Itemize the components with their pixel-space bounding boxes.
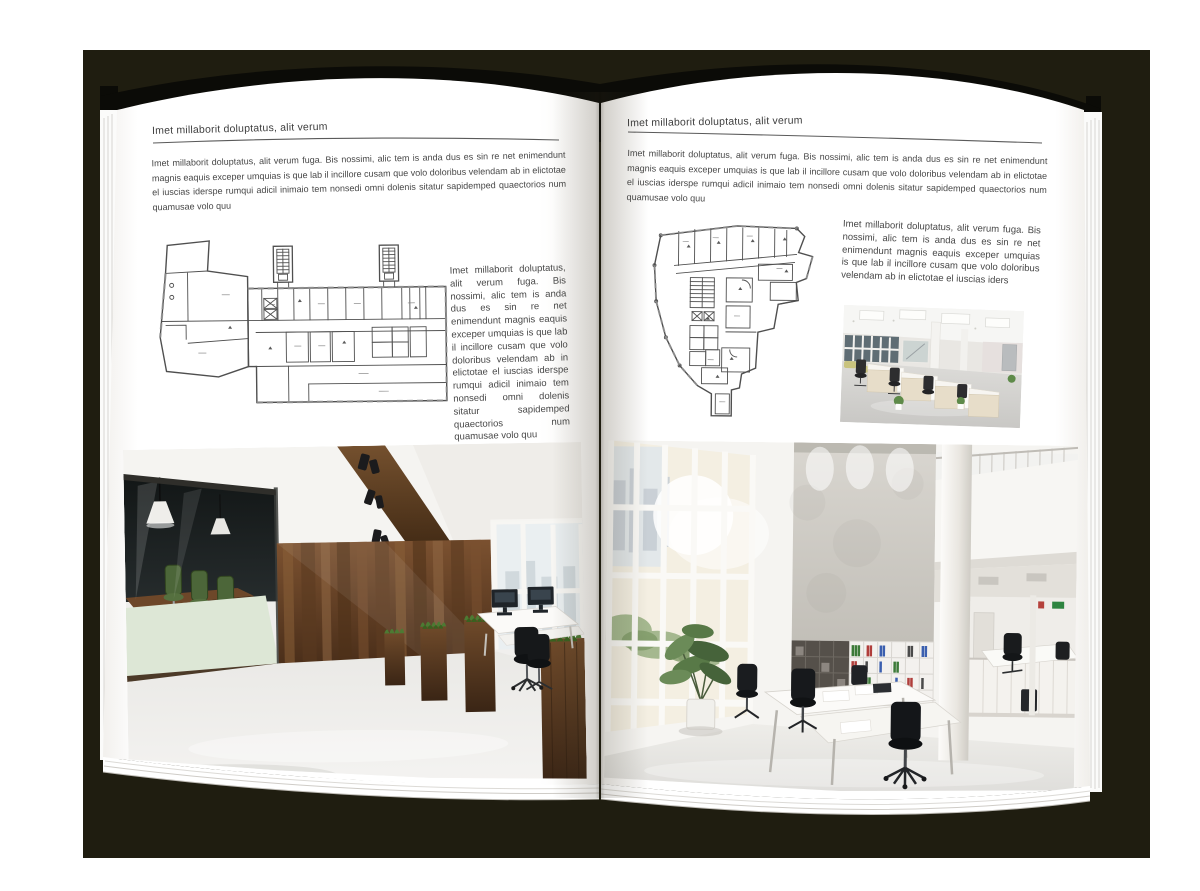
right-floor-plan xyxy=(645,219,837,426)
right-header-rule xyxy=(627,128,1045,146)
stair-tower xyxy=(379,245,398,281)
magazine-mockup-stage: Imet millaborit doluptatus, alit verum I… xyxy=(0,0,1200,891)
office-photo-desk-rows xyxy=(840,305,1024,428)
office-photo-meeting-room xyxy=(123,442,587,790)
office-photo-atrium xyxy=(604,440,1078,794)
right-plan-caption: Imet millaborit doluptatus, alit verum f… xyxy=(841,219,1041,290)
left-header-rule xyxy=(152,133,562,147)
left-floor-plan xyxy=(157,222,451,413)
glass-meeting-room xyxy=(123,471,281,682)
stair-tower xyxy=(273,246,292,282)
left-plan-caption: Imet millaborit doluptatus, alit verum f… xyxy=(450,262,571,444)
concrete-wall xyxy=(788,442,936,642)
right-page-intro: Imet millaborit doluptatus, alit verum f… xyxy=(626,146,1047,212)
left-page-intro: Imet millaborit doluptatus, alit verum f… xyxy=(151,148,566,215)
